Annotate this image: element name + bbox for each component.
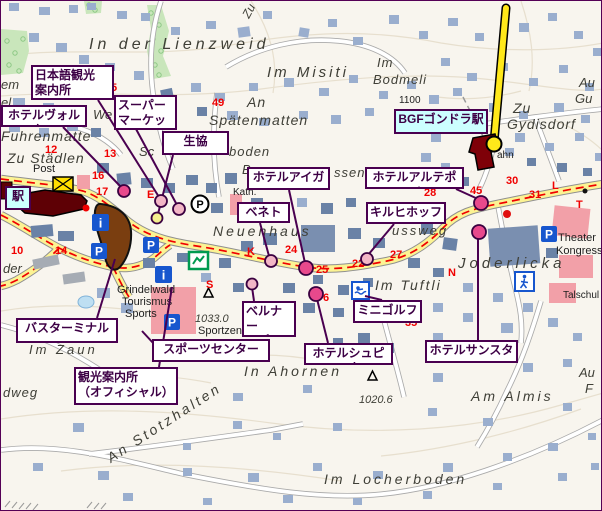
building — [423, 491, 432, 499]
forest-area — [1, 29, 29, 75]
red-map-number: 24 — [285, 244, 298, 256]
building — [62, 272, 85, 285]
map-label: Kongress — [556, 245, 602, 257]
red-map-number: 30 — [506, 175, 518, 187]
building — [233, 283, 244, 292]
building — [379, 91, 388, 99]
map-label: ahn — [497, 150, 514, 161]
red-map-number: 17 — [96, 186, 108, 198]
building — [353, 37, 363, 45]
callout-tourist-info-official[interactable]: 観光案内所 （オフィシャル） — [74, 367, 178, 405]
building — [283, 495, 293, 503]
building — [9, 3, 19, 11]
poi-marker[interactable] — [265, 255, 277, 267]
building — [211, 203, 223, 213]
red-map-number: N — [448, 267, 456, 279]
place-name: Joderlicka — [457, 255, 566, 272]
svg-text:i: i — [99, 216, 103, 231]
place-name: An — [246, 94, 266, 110]
building — [583, 168, 592, 176]
callout-japanese-tourist-info[interactable]: 日本語観光 案内所 — [31, 65, 114, 100]
red-map-number: L — [552, 180, 559, 192]
building — [29, 33, 39, 42]
place-name: Im Misiti — [267, 64, 349, 81]
callout-bgf-gondola-station[interactable]: BGFゴンドラ駅 — [394, 109, 488, 134]
building — [463, 283, 473, 292]
building — [183, 468, 192, 476]
poi-marker[interactable] — [247, 279, 258, 290]
information-icon: i — [155, 266, 172, 283]
place-name: Gydisdorf — [507, 116, 577, 132]
place-name: 1020.6 — [359, 394, 394, 406]
place-name: dweg — [3, 385, 38, 400]
callout-benetton[interactable]: ベネトン — [237, 202, 290, 223]
red-map-number: 16 — [92, 170, 104, 182]
map-label: Grindelwald — [117, 284, 175, 296]
building — [197, 107, 207, 116]
svg-text:P: P — [147, 239, 155, 253]
building — [98, 471, 109, 480]
building — [573, 333, 582, 341]
building — [527, 158, 536, 166]
red-map-number: 10 — [11, 245, 23, 257]
building — [73, 423, 84, 432]
building — [273, 433, 281, 440]
contour-line — [431, 91, 521, 99]
map-dot — [583, 189, 588, 194]
building — [428, 408, 437, 416]
building — [331, 115, 341, 124]
building — [58, 231, 74, 241]
building — [442, 237, 458, 251]
building — [548, 13, 557, 21]
building — [333, 308, 344, 317]
place-name: Gu — [575, 91, 592, 106]
building — [87, 3, 96, 10]
building — [433, 268, 444, 277]
place-name: Spätenmatten — [209, 112, 308, 128]
building — [421, 153, 431, 162]
building — [203, 498, 212, 505]
place-name: Au — [578, 75, 595, 90]
building — [519, 23, 529, 32]
place-name: In Ahornen — [244, 363, 342, 379]
svg-text:P: P — [95, 245, 103, 259]
parking-icon: P — [91, 243, 107, 259]
place-name: boden — [229, 144, 270, 159]
map-label: 1100 — [399, 95, 421, 106]
building — [348, 228, 361, 239]
poi-marker[interactable] — [173, 203, 185, 215]
building — [143, 258, 155, 268]
embankment-hatch — [5, 501, 10, 507]
parking-icon: P — [143, 237, 159, 253]
building — [191, 83, 201, 92]
building — [123, 493, 133, 501]
callout-hotel-sunstar[interactable]: ホテルサンスター — [425, 340, 518, 363]
building — [79, 55, 89, 64]
building — [557, 163, 567, 172]
building — [595, 153, 602, 161]
building — [448, 18, 458, 26]
building — [419, 31, 428, 39]
map-label: Tourismus — [122, 296, 173, 308]
building — [69, 5, 78, 13]
building — [433, 303, 443, 312]
red-map-number: 13 — [104, 148, 116, 160]
map-dot — [503, 210, 511, 218]
callout-station[interactable]: 駅 — [5, 186, 31, 210]
post-office-icon — [53, 177, 73, 191]
building — [298, 27, 309, 38]
place-name: Am Almis — [470, 388, 554, 404]
place-name: Im Locherboden — [324, 471, 467, 487]
place-name: 1033.0 — [195, 313, 230, 325]
building — [177, 253, 188, 262]
building — [263, 11, 272, 19]
place-name: Im Tuftli — [375, 277, 442, 293]
callout-supermarket[interactable]: スーパー マーケット — [114, 95, 177, 130]
building — [303, 385, 312, 393]
callout-hotel-eiger[interactable]: ホテルアイガー — [247, 167, 330, 190]
callout-kirchhofer[interactable]: キルヒホッファー — [366, 202, 446, 224]
poi-marker[interactable] — [361, 253, 373, 265]
building — [554, 103, 564, 112]
embankment-hatch — [87, 502, 92, 508]
place-name: In der Lienzweid — [89, 36, 270, 53]
building — [389, 15, 399, 24]
callout-berner-sports[interactable]: ベルナー スポーツ — [242, 301, 296, 337]
callout-hotel-alte-post[interactable]: ホテルアルテポスト — [365, 167, 464, 189]
map-label: Talschul — [563, 290, 599, 301]
place-name: Im — [377, 55, 393, 70]
building — [467, 73, 477, 81]
place-name: ssen — [334, 165, 365, 180]
building — [33, 463, 43, 471]
poi-marker[interactable] — [472, 225, 486, 239]
building — [501, 323, 513, 333]
building — [493, 483, 502, 490]
building — [206, 183, 217, 193]
svg-text:P: P — [168, 316, 176, 330]
building — [349, 75, 358, 83]
place-name: der — [3, 261, 22, 276]
red-map-number: 31 — [529, 189, 541, 201]
building — [515, 133, 525, 142]
map-canvas: PPPPiiPIn der LienzweidIm MisitiImBodmel… — [0, 0, 602, 511]
poi-marker[interactable] — [118, 185, 130, 197]
building — [545, 143, 554, 151]
building — [558, 473, 567, 481]
museum-icon — [189, 252, 208, 269]
svg-text:i: i — [162, 268, 166, 283]
place-name: Im Zaun — [29, 342, 98, 357]
building — [233, 393, 243, 401]
building — [134, 71, 144, 80]
building — [523, 303, 533, 312]
red-map-number: K — [247, 246, 255, 258]
parking-icon: P — [541, 226, 557, 242]
embankment-hatch — [101, 503, 106, 509]
building — [338, 285, 349, 295]
callout-coop[interactable]: 生協 — [162, 131, 229, 155]
building — [77, 175, 90, 189]
red-map-number: 6 — [323, 292, 329, 304]
red-map-number: S — [206, 279, 213, 291]
place-name: ussweg — [392, 223, 448, 238]
building — [574, 31, 583, 39]
place-name: Zu — [512, 100, 531, 116]
red-map-number: T — [576, 199, 583, 211]
poi-marker[interactable] — [474, 196, 488, 210]
building — [303, 303, 315, 313]
building — [453, 88, 462, 96]
building — [346, 198, 356, 207]
pond — [78, 296, 94, 308]
building — [219, 258, 231, 268]
building — [463, 313, 473, 322]
callout-bus-terminal[interactable]: バスターミナル — [16, 318, 118, 343]
information-icon: i — [92, 214, 109, 231]
embankment-hatch — [33, 504, 38, 510]
building — [91, 128, 101, 137]
red-map-number: E — [147, 189, 154, 201]
map-dot — [83, 205, 90, 212]
building — [313, 463, 322, 471]
building — [249, 83, 258, 91]
building — [563, 359, 572, 367]
building — [493, 293, 503, 302]
building — [358, 333, 370, 343]
building — [588, 433, 596, 440]
svg-text:P: P — [196, 199, 203, 211]
map-label: Theater — [558, 232, 596, 244]
callout-connector — [317, 299, 328, 343]
red-map-number: 12 — [45, 144, 57, 156]
building — [593, 48, 601, 56]
place-name: em — [1, 77, 19, 92]
map-label: Sports — [125, 308, 157, 320]
building — [475, 33, 484, 41]
building — [503, 453, 512, 461]
contour-line — [521, 1, 532, 91]
building — [431, 133, 441, 142]
map-label: Post — [33, 163, 55, 175]
building — [433, 373, 443, 382]
building — [548, 443, 558, 451]
red-map-number: 49 — [212, 97, 224, 109]
poi-marker[interactable] — [299, 261, 313, 275]
building — [581, 115, 590, 123]
poi-marker[interactable] — [309, 287, 323, 301]
hiking-trail-icon — [515, 272, 534, 291]
embankment-hatch — [94, 503, 99, 509]
building — [319, 88, 329, 96]
building — [56, 43, 67, 52]
building — [429, 95, 439, 104]
poi-marker[interactable] — [155, 195, 167, 207]
building — [248, 473, 259, 482]
poi-marker[interactable] — [152, 213, 163, 224]
callout-hotel-spinne[interactable]: ホテルシュピンネ — [304, 343, 393, 365]
building — [548, 318, 558, 327]
building — [39, 7, 50, 15]
building — [559, 65, 568, 73]
building — [591, 463, 599, 470]
building — [297, 198, 307, 207]
building — [523, 363, 533, 372]
place-name: Zu — [239, 1, 259, 21]
place-name: Au — [578, 365, 595, 380]
building — [283, 283, 295, 293]
place-name: F — [585, 381, 594, 396]
building — [483, 418, 493, 426]
parking-circle-icon: P — [192, 196, 209, 213]
building — [117, 11, 127, 19]
callout-sports-center[interactable]: スポーツセンター — [152, 339, 270, 362]
building — [575, 133, 584, 141]
building — [141, 13, 150, 21]
place-name: Sc — [139, 144, 155, 159]
building — [225, 173, 237, 184]
red-map-number: 27 — [390, 249, 402, 261]
red-map-number: 14 — [55, 245, 68, 257]
building — [233, 421, 242, 429]
triangle-marker-icon — [368, 371, 377, 380]
building — [328, 19, 337, 27]
building — [563, 403, 572, 411]
building — [441, 58, 450, 66]
red-map-number: 25 — [316, 264, 328, 276]
building — [321, 203, 333, 214]
building — [529, 78, 538, 86]
building — [31, 224, 54, 238]
building — [186, 175, 198, 185]
building — [333, 423, 342, 431]
svg-text:P: P — [545, 228, 553, 242]
building — [353, 498, 362, 505]
place-name: Bodmeli — [373, 72, 427, 87]
building — [183, 443, 191, 450]
embankment-hatch — [19, 503, 24, 509]
callout-hotel-wolter[interactable]: ホテルヴォルター — [1, 105, 87, 127]
building — [365, 108, 374, 116]
building — [313, 275, 323, 284]
building — [171, 27, 180, 35]
callout-minigolf[interactable]: ミニゴルフ — [353, 300, 422, 323]
embankment-hatch — [26, 503, 31, 509]
building — [408, 258, 420, 268]
building — [206, 21, 216, 29]
embankment-hatch — [12, 502, 17, 508]
